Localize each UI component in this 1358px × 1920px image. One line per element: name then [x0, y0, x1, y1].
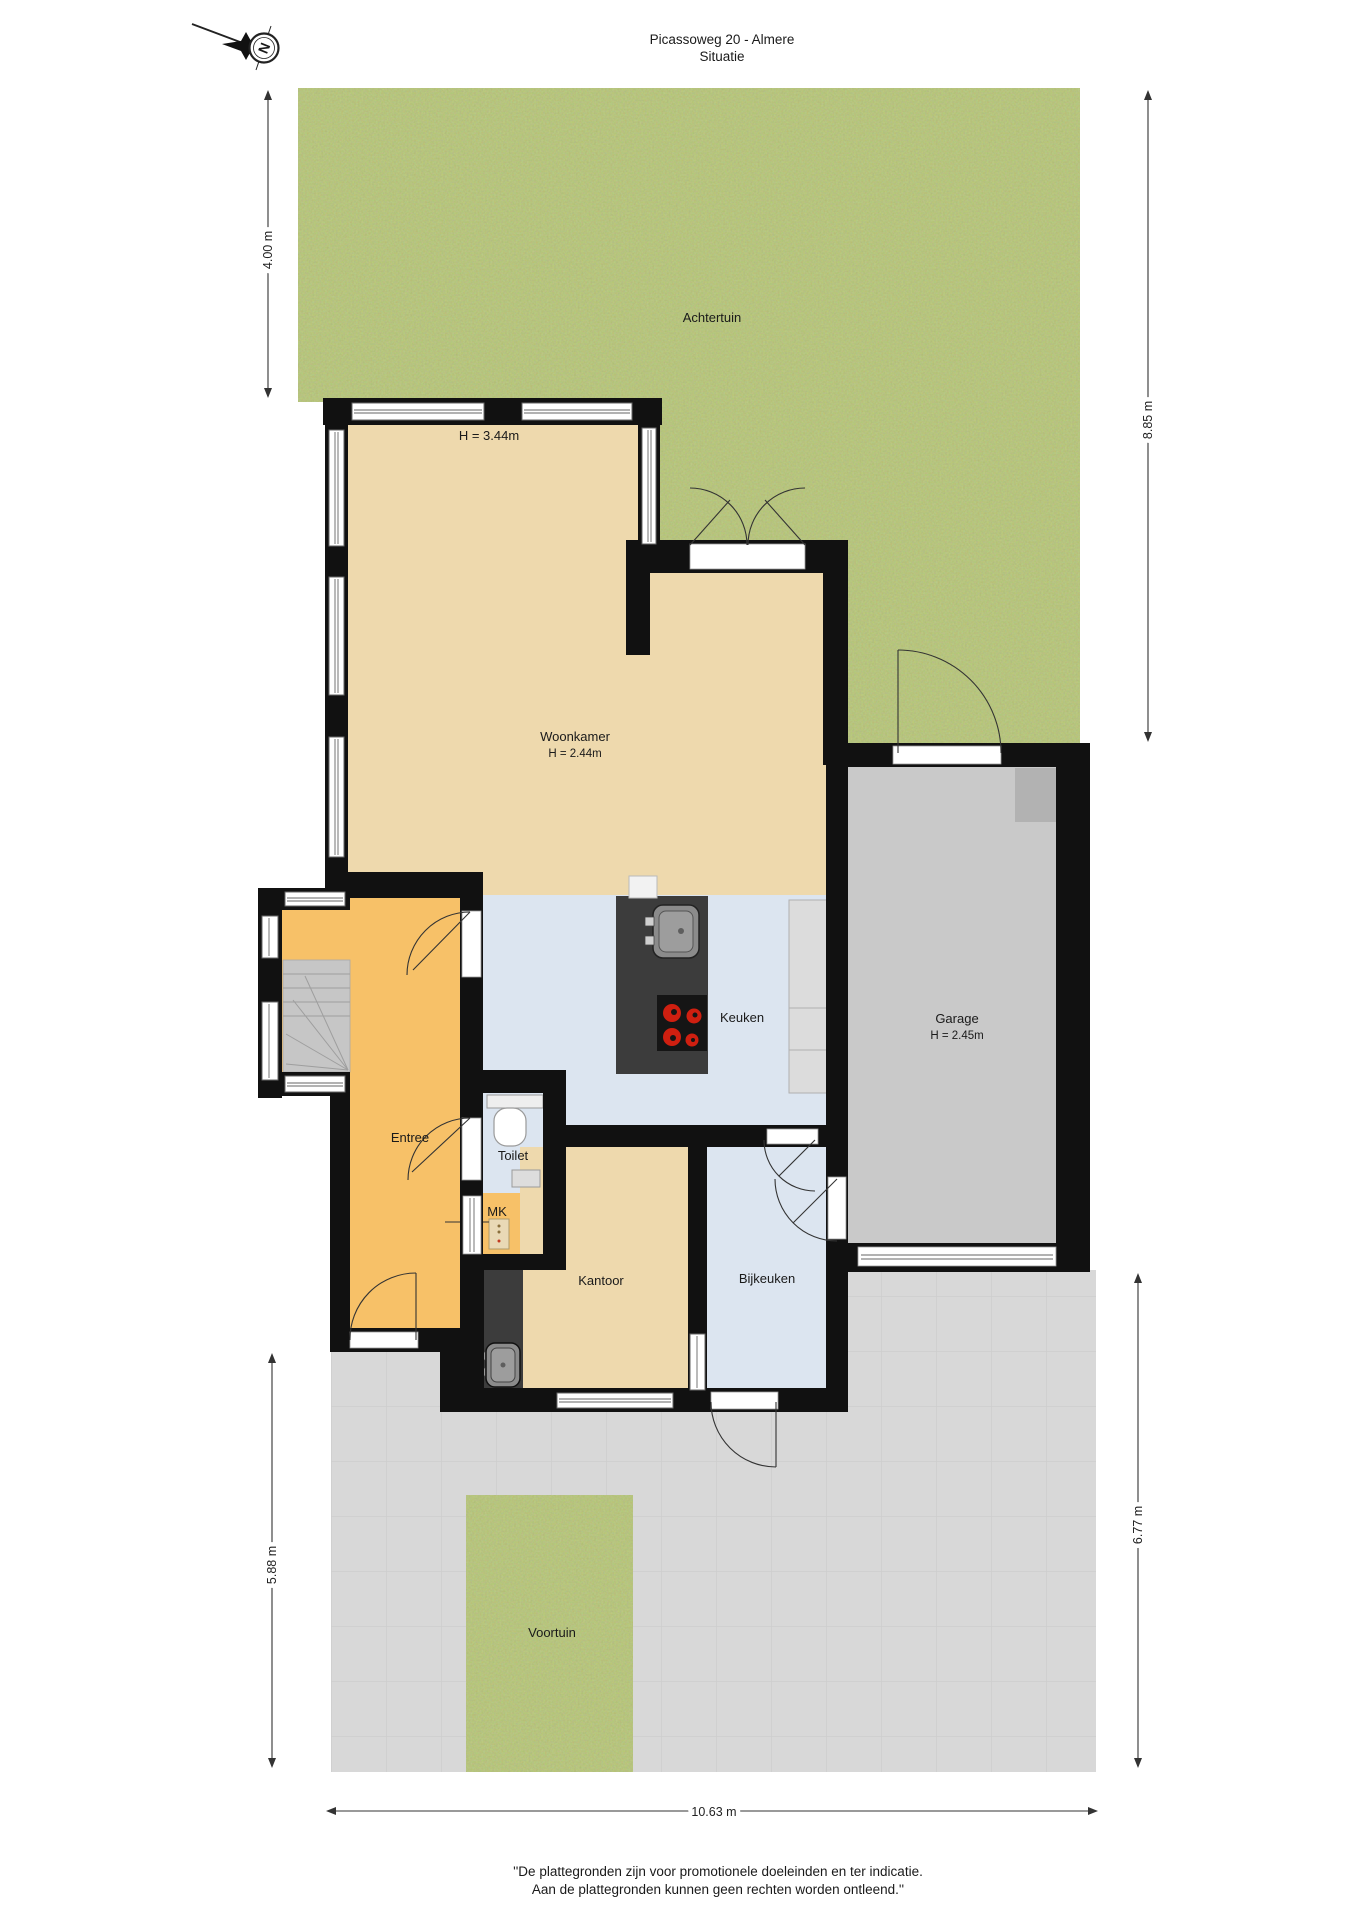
- page-title: Picassoweg 20 - Almere: [650, 32, 795, 47]
- bijkeuken-exterior-door-opening: [711, 1392, 778, 1409]
- paving-area: [848, 1270, 1096, 1355]
- label-voortuin: Voortuin: [528, 1625, 576, 1640]
- label-woonkamer-height: H = 2.44m: [548, 748, 601, 760]
- front-door-opening: [350, 1332, 418, 1348]
- dim-1063m: 10.63 m: [691, 1805, 736, 1819]
- kitchen-island: [616, 876, 708, 1074]
- dim-4m: 4.00 m: [261, 231, 275, 269]
- entree-keuken-door-opening: [462, 911, 481, 977]
- floorplan-drawing: Achtertuin H = 3.44m Woonkamer H = 2.44m…: [0, 0, 1358, 1920]
- label-serre-height: H = 3.44m: [459, 428, 519, 443]
- garage-bijkeuken-door-opening: [828, 1177, 846, 1239]
- dim-885m: 8.85 m: [1141, 401, 1155, 439]
- garage-main-door: [858, 1247, 1056, 1266]
- grass-area: [298, 88, 1080, 402]
- label-garage-height: H = 2.45m: [930, 1030, 983, 1042]
- grass-area: [657, 400, 1080, 562]
- label-woonkamer: Woonkamer: [540, 729, 611, 744]
- grass-area: [838, 560, 1080, 747]
- toilet-sink-icon: [512, 1170, 540, 1187]
- dim-677m: 6.77 m: [1131, 1506, 1145, 1544]
- toilet-door-opening: [462, 1118, 481, 1180]
- garage-garden-door-opening: [893, 746, 1001, 764]
- label-toilet: Toilet: [498, 1148, 529, 1163]
- label-entree: Entree: [391, 1130, 429, 1145]
- kitchen-wall-counter: [789, 900, 829, 1093]
- double-door-opening: [690, 544, 805, 569]
- paving-area: [331, 1351, 1096, 1772]
- label-bijkeuken: Bijkeuken: [739, 1271, 795, 1286]
- staircase: [283, 960, 350, 1072]
- dim-588m: 5.88 m: [265, 1546, 279, 1584]
- mk-door-opening: [463, 1196, 481, 1254]
- label-kantoor: Kantoor: [578, 1273, 624, 1288]
- label-mk: MK: [487, 1204, 507, 1219]
- garage-storage-block: [1015, 768, 1058, 822]
- page-subtitle: Situatie: [699, 49, 744, 64]
- garage-floor: [840, 760, 1064, 1252]
- extractor-hood: [629, 876, 657, 898]
- footer-line1: ''De plattegronden zijn voor promotionel…: [513, 1864, 923, 1879]
- floorplan-page: Achtertuin H = 3.44m Woonkamer H = 2.44m…: [0, 0, 1358, 1920]
- kitchen-sink-icon: [645, 905, 699, 958]
- label-achtertuin: Achtertuin: [683, 310, 742, 325]
- label-garage: Garage: [935, 1011, 978, 1026]
- stove-icon: [657, 995, 707, 1051]
- keuken-bijkeuken-door-opening: [767, 1129, 818, 1144]
- footer-line2: Aan de plattegronden kunnen geen rechten…: [532, 1882, 904, 1897]
- label-keuken: Keuken: [720, 1010, 764, 1025]
